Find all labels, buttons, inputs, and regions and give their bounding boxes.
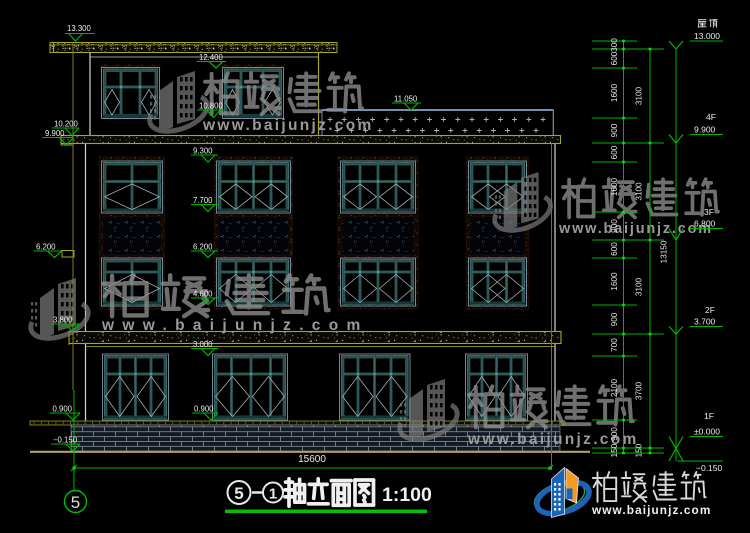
svg-text:700: 700: [610, 338, 619, 352]
svg-text:1600: 1600: [610, 83, 619, 102]
svg-text:150: 150: [610, 443, 619, 457]
svg-text:900: 900: [610, 312, 619, 326]
svg-text:7.700: 7.700: [193, 196, 213, 205]
svg-text:6.200: 6.200: [36, 243, 56, 252]
svg-text:3700: 3700: [635, 381, 644, 400]
svg-text:4.600: 4.600: [193, 290, 213, 299]
svg-text:13150: 13150: [660, 240, 669, 263]
svg-text:900: 900: [610, 427, 619, 441]
svg-text:1F: 1F: [704, 411, 714, 421]
svg-text:300: 300: [610, 38, 619, 52]
svg-text:150: 150: [635, 443, 644, 457]
svg-text:10.200: 10.200: [54, 120, 79, 129]
svg-text:2F: 2F: [705, 305, 715, 315]
svg-text:12.400: 12.400: [199, 53, 224, 62]
svg-text:www.baijunjz.com: www.baijunjz.com: [558, 221, 713, 237]
svg-text:900: 900: [610, 219, 619, 233]
svg-text:600: 600: [610, 145, 619, 159]
svg-text:1600: 1600: [610, 177, 619, 196]
svg-text:3F: 3F: [704, 207, 714, 217]
svg-text:11.050: 11.050: [394, 95, 418, 104]
svg-text:9.300: 9.300: [193, 147, 213, 156]
svg-text:www.baijunjz.com: www.baijunjz.com: [591, 503, 711, 517]
svg-text:4F: 4F: [706, 112, 716, 122]
svg-text:1: 1: [269, 486, 277, 503]
svg-text:0.900: 0.900: [53, 405, 73, 414]
svg-text:600: 600: [610, 51, 619, 65]
svg-text:3.800: 3.800: [53, 316, 73, 325]
svg-text:1600: 1600: [610, 272, 619, 291]
svg-text:3100: 3100: [635, 86, 644, 105]
svg-text:5: 5: [234, 484, 243, 503]
svg-text:−0.150: −0.150: [696, 463, 723, 473]
svg-text:0.900: 0.900: [194, 405, 214, 414]
svg-text:±0.000: ±0.000: [694, 427, 720, 437]
svg-text:3.700: 3.700: [694, 317, 716, 327]
svg-text:13.300: 13.300: [67, 24, 92, 33]
svg-text:900: 900: [610, 123, 619, 137]
svg-text:3100: 3100: [635, 277, 644, 296]
svg-text:6.200: 6.200: [193, 243, 213, 252]
svg-text:3.000: 3.000: [193, 340, 213, 349]
svg-text:2100: 2100: [610, 378, 619, 397]
svg-text:www.baijunjz.com: www.baijunjz.com: [101, 317, 369, 334]
svg-text:5: 5: [71, 493, 80, 512]
svg-text:600: 600: [610, 242, 619, 256]
svg-text:1:100: 1:100: [382, 484, 432, 506]
svg-text:www.baijunjz.com: www.baijunjz.com: [202, 117, 374, 134]
svg-text:−0.150: −0.150: [53, 436, 78, 445]
svg-text:9.900: 9.900: [694, 125, 716, 135]
svg-text:6.800: 6.800: [694, 219, 716, 229]
svg-text:10.800: 10.800: [199, 102, 224, 111]
svg-text:3100: 3100: [635, 182, 644, 201]
svg-text:13.000: 13.000: [694, 31, 720, 41]
svg-text:9.900: 9.900: [45, 129, 65, 138]
svg-text:15600: 15600: [298, 454, 326, 465]
